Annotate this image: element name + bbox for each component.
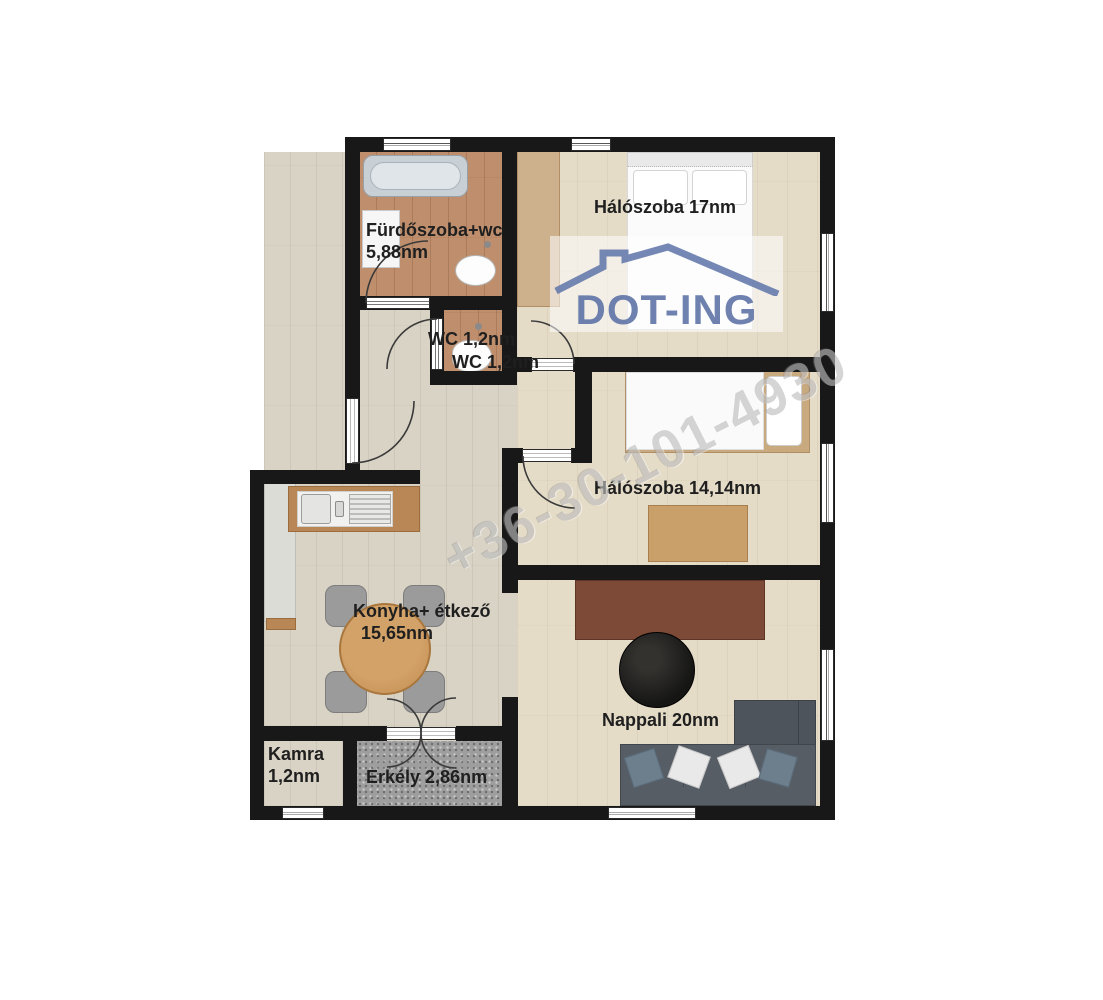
wall (250, 470, 264, 820)
coffee-table (619, 632, 695, 708)
bed-headboard (627, 152, 753, 167)
kitchen-cooktop (349, 494, 391, 524)
room-label-pantry: Kamra 1,2nm (268, 743, 324, 787)
wall (502, 565, 835, 580)
window (821, 443, 834, 523)
door-entry (346, 398, 359, 464)
room-label-living: Nappali 20nm (602, 709, 719, 731)
room-label-wc2: WC 1,2nm (452, 351, 539, 373)
room-label-kitchen-area: 15,65nm (353, 622, 491, 644)
kitchen-faucet (335, 501, 344, 517)
door-bathroom (366, 297, 430, 309)
window (821, 233, 834, 312)
kitchen-side-shelf (266, 618, 296, 630)
door-balcony-french (386, 727, 456, 740)
room-label-bathroom: Fürdőszoba+wc 5,88nm (366, 219, 503, 263)
room-label-bedroom1: Hálószoba 17nm (594, 196, 736, 218)
room-label-wc1: WC 1,2nm (428, 328, 515, 350)
floorplan-page: Fürdőszoba+wc 5,88nm WC 1,2nm WC 1,2nm H… (0, 0, 1103, 1000)
window (608, 807, 696, 819)
wall (264, 726, 343, 741)
wall (456, 726, 518, 741)
window (383, 138, 451, 151)
room-label-bathroom-name: Fürdőszoba+wc (366, 219, 503, 241)
logo-wordmark: DOT-ING (550, 286, 783, 334)
room-label-balcony: Erkély 2,86nm (366, 766, 487, 788)
window (282, 807, 324, 819)
wall (343, 726, 357, 820)
wall (575, 364, 592, 450)
desk (648, 505, 748, 562)
kitchen-sink (301, 494, 331, 524)
room-label-pantry-area: 1,2nm (268, 765, 324, 787)
window (571, 138, 611, 151)
sideboard (575, 580, 765, 640)
kitchen-counter (288, 486, 420, 532)
room-label-bathroom-area: 5,88nm (366, 241, 503, 263)
bathtub-basin (370, 162, 461, 190)
wall (250, 470, 420, 484)
door-bedroom2 (522, 449, 572, 462)
room-label-pantry-name: Kamra (268, 743, 324, 765)
wall (430, 371, 517, 385)
doting-logo: DOT-ING (550, 236, 783, 332)
window (821, 649, 834, 741)
bathtub (363, 155, 468, 197)
wall (502, 697, 518, 820)
wall (250, 806, 835, 820)
